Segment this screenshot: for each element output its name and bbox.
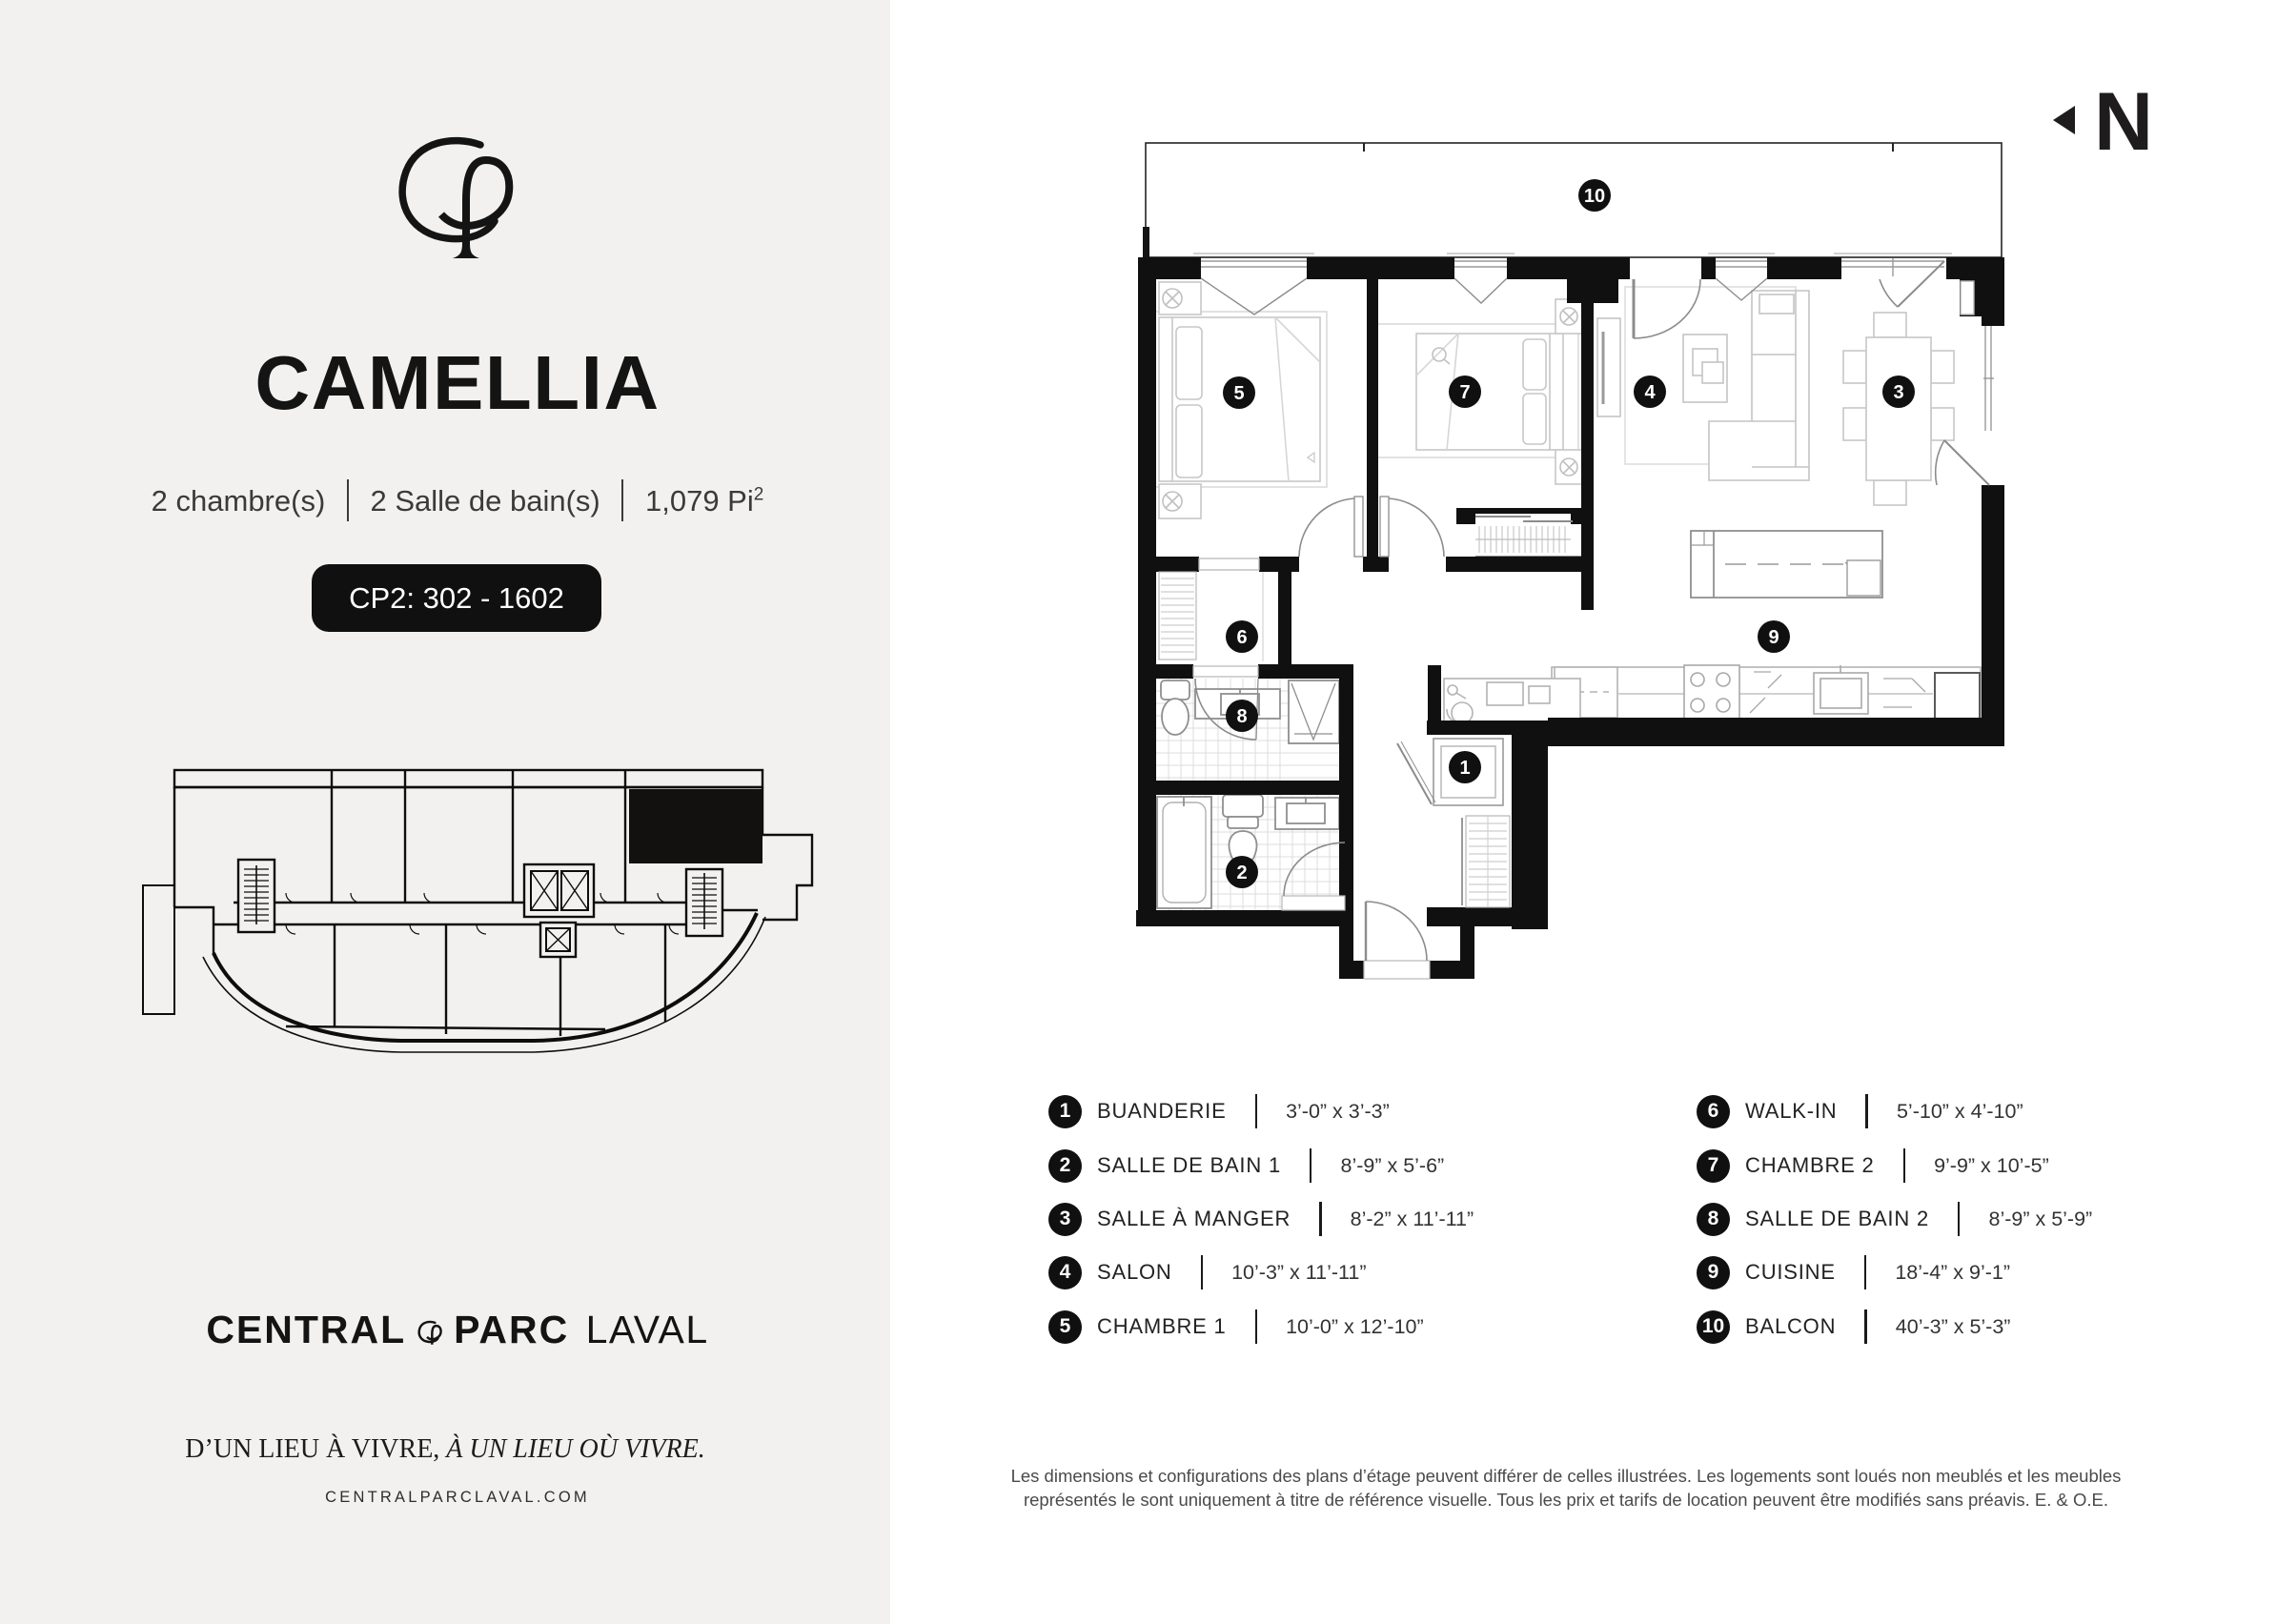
svg-text:1: 1 <box>1459 758 1470 779</box>
svg-text:2: 2 <box>1236 863 1247 883</box>
svg-text:9: 9 <box>1768 627 1779 648</box>
svg-text:5: 5 <box>1233 383 1244 404</box>
svg-text:10: 10 <box>1584 186 1605 207</box>
svg-text:8: 8 <box>1236 706 1247 727</box>
svg-text:N: N <box>2094 81 2153 157</box>
svg-text:4: 4 <box>1644 382 1656 403</box>
svg-text:7: 7 <box>1459 382 1470 403</box>
svg-text:3: 3 <box>1893 382 1903 403</box>
svg-text:6: 6 <box>1236 627 1247 648</box>
